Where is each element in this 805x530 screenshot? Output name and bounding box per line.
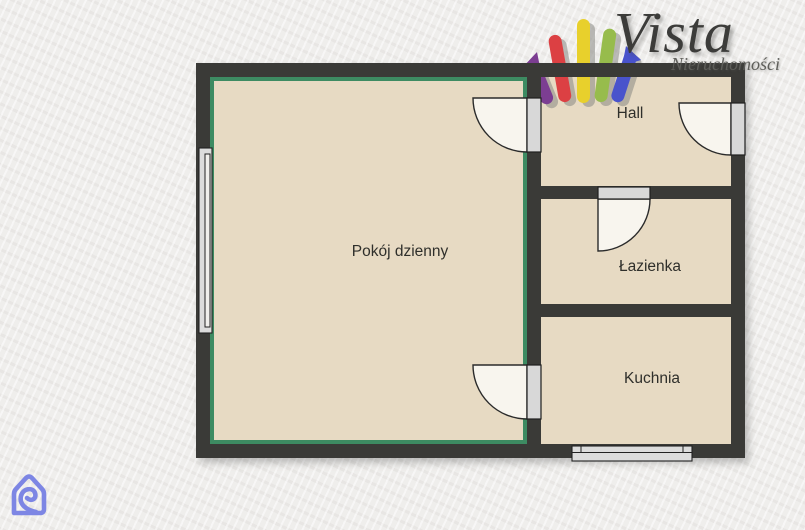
portal-watermark: [0, 0, 805, 530]
house-spiral-icon: [14, 477, 44, 514]
